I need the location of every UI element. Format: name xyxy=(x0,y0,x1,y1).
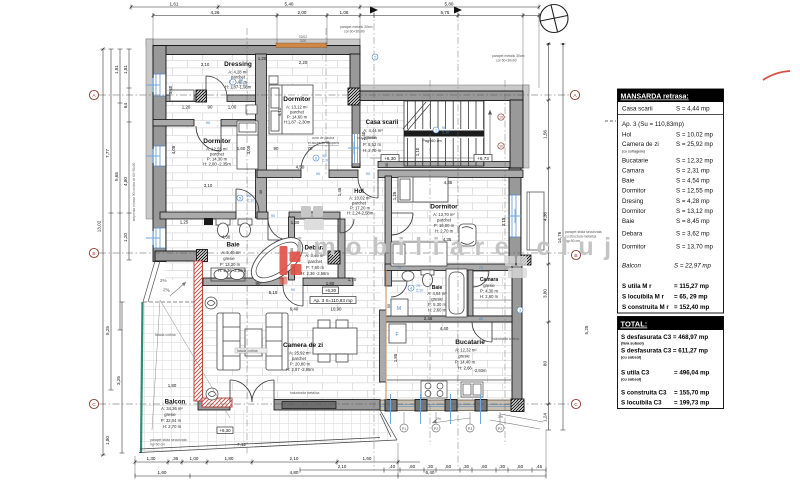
svg-text:gresie: gresie xyxy=(458,354,470,359)
svg-text:A: 12,32 m²: A: 12,32 m² xyxy=(455,348,477,353)
svg-text:90: 90 xyxy=(366,171,371,176)
svg-text:P: 5,30 m: P: 5,30 m xyxy=(428,302,446,307)
svg-text:H: 2,36 -2,56m: H: 2,36 -2,56m xyxy=(301,271,329,276)
svg-text:S = 12,55 mp: S = 12,55 mp xyxy=(676,188,714,195)
svg-text:parapet sticla securizata: parapet sticla securizata xyxy=(150,438,187,442)
svg-text:gresie: gresie xyxy=(431,297,443,302)
svg-text:H: 2,24-2,58m: H: 2,24-2,58m xyxy=(347,211,374,216)
svg-text:S = 3,62 mp: S = 3,62 mp xyxy=(676,231,710,238)
svg-text:P3: P3 xyxy=(468,427,472,431)
svg-text:TOTAL:: TOTAL: xyxy=(621,320,648,329)
svg-text:C: C xyxy=(92,402,96,408)
svg-text:Dormitor: Dormitor xyxy=(622,244,646,251)
svg-text:Baie: Baie xyxy=(226,242,240,249)
svg-text:2,20: 2,20 xyxy=(299,60,308,65)
svg-text:90: 90 xyxy=(291,287,296,292)
svg-text:2,40: 2,40 xyxy=(361,131,366,140)
svg-text:Camara: Camara xyxy=(622,168,645,175)
svg-text:1,81: 1,81 xyxy=(123,65,128,74)
svg-text:2,10: 2,10 xyxy=(247,199,254,203)
svg-text:10: 10 xyxy=(499,115,503,119)
svg-text:= 152,40 mp: = 152,40 mp xyxy=(674,304,709,311)
svg-text:S utila M r: S utila M r xyxy=(622,283,652,290)
svg-text:Dormitor: Dormitor xyxy=(622,208,646,215)
svg-text:80: 80 xyxy=(479,316,484,321)
svg-text:1: 1 xyxy=(435,129,437,133)
svg-text:1,24: 1,24 xyxy=(543,413,548,422)
svg-text:S locuibila M r: S locuibila M r xyxy=(622,294,665,301)
svg-text:C: C xyxy=(574,402,578,408)
svg-text:+6,30: +6,30 xyxy=(325,288,337,293)
svg-text:1,70: 1,70 xyxy=(348,277,357,282)
svg-text:S = 8,45 mp: S = 8,45 mp xyxy=(676,218,710,225)
svg-text:3,00: 3,00 xyxy=(300,39,306,43)
svg-text:3: 3 xyxy=(519,309,521,313)
svg-text:1,40: 1,40 xyxy=(168,85,173,94)
svg-text:H: 2,60 m: H: 2,60 m xyxy=(428,308,447,313)
svg-text:A: 34,36 m²: A: 34,36 m² xyxy=(161,406,183,411)
svg-text:2,10: 2,10 xyxy=(442,131,449,135)
svg-text:4,80: 4,80 xyxy=(123,177,128,186)
svg-text:90: 90 xyxy=(256,281,261,286)
svg-text:4,36: 4,36 xyxy=(543,212,548,221)
svg-text:2,10: 2,10 xyxy=(338,464,347,469)
svg-text:amprenta retrasa 30cm fata de: amprenta retrasa 30cm fata de 60+30x90 xyxy=(132,162,136,221)
svg-text:30: 30 xyxy=(259,190,263,194)
svg-text:1,80: 1,80 xyxy=(105,436,110,445)
svg-text:1,20: 1,20 xyxy=(123,233,128,242)
svg-text:P: 4,30 m: P: 4,30 m xyxy=(480,289,498,294)
svg-text:4,50: 4,50 xyxy=(296,165,305,170)
svg-text:Baie: Baie xyxy=(622,218,635,225)
svg-text:A: 13,70 m²: A: 13,70 m² xyxy=(433,212,455,217)
svg-text:S utila C3: S utila C3 xyxy=(621,370,650,377)
svg-text:5,65: 5,65 xyxy=(114,172,119,181)
svg-text:1,30: 1,30 xyxy=(147,456,156,461)
svg-text:,30: ,30 xyxy=(427,464,434,469)
svg-text:A: 5,46 m²: A: 5,46 m² xyxy=(221,250,241,255)
svg-text:Dormitor: Dormitor xyxy=(283,96,311,103)
svg-text:80: 80 xyxy=(543,361,548,367)
svg-text:70: 70 xyxy=(397,265,402,270)
svg-text:H: 2,66: H: 2,66 xyxy=(458,366,472,371)
svg-text:H: 2,36 -2,56m: H: 2,36 -2,56m xyxy=(218,268,246,273)
svg-text:gresie: gresie xyxy=(164,412,176,417)
svg-text:H: 2,60 m: H: 2,60 m xyxy=(480,294,499,299)
svg-text:50: 50 xyxy=(387,304,391,308)
svg-text:2,10: 2,10 xyxy=(290,456,299,461)
svg-text:parapet metalic 30cm: parapet metalic 30cm xyxy=(340,25,373,29)
svg-text:5,10: 5,10 xyxy=(269,290,278,295)
svg-text:1,60: 1,60 xyxy=(237,146,246,151)
svg-text:P2: P2 xyxy=(498,427,502,431)
svg-text:S = 4,28 mp: S = 4,28 mp xyxy=(676,198,710,205)
svg-text:balustrada metalica: balustrada metalica xyxy=(290,391,320,395)
svg-text:el acces de adopens: el acces de adopens xyxy=(308,141,339,145)
svg-text:= 65, 29 mp: = 65, 29 mp xyxy=(674,294,708,301)
svg-text:5,25: 5,25 xyxy=(105,326,110,335)
svg-text:(cu sufragerie): (cu sufragerie) xyxy=(622,150,645,154)
svg-text:4,26: 4,26 xyxy=(211,10,220,15)
svg-text:P: 20,80 m: P: 20,80 m xyxy=(290,362,311,367)
svg-text:3,25: 3,25 xyxy=(116,376,121,385)
svg-text:Casa scarii: Casa scarii xyxy=(622,106,653,113)
svg-text:Dressing: Dressing xyxy=(224,61,252,68)
svg-text:,60: ,60 xyxy=(445,464,452,469)
svg-text:,30: ,30 xyxy=(499,464,506,469)
svg-text:1,85: 1,85 xyxy=(393,353,398,362)
svg-text:M: M xyxy=(397,306,401,312)
svg-text:1,25: 1,25 xyxy=(180,220,189,225)
svg-text:1,20: 1,20 xyxy=(182,105,191,110)
svg-text:+6,30: +6,30 xyxy=(219,428,231,433)
svg-text:2%: 2% xyxy=(160,278,167,283)
svg-text:90: 90 xyxy=(316,171,321,176)
svg-text:1,60: 1,60 xyxy=(158,470,167,475)
svg-text:P1: P1 xyxy=(402,427,406,431)
svg-text:2: 2 xyxy=(374,56,376,60)
svg-text:Ap. 3 (Su = 110,83mp): Ap. 3 (Su = 110,83mp) xyxy=(622,121,684,128)
svg-text:A: 4,54 m²: A: 4,54 m² xyxy=(427,291,447,296)
svg-text:3,10: 3,10 xyxy=(204,183,213,188)
svg-text:B: B xyxy=(92,251,95,257)
svg-text:1,80: 1,80 xyxy=(168,383,177,388)
svg-text:S = 4,44 mp: S = 4,44 mp xyxy=(676,106,710,113)
svg-text:30: 30 xyxy=(290,248,294,252)
svg-text:1,81: 1,81 xyxy=(114,65,119,74)
svg-text:H: 2,00 -2,35m: H: 2,00 -2,35m xyxy=(203,162,231,167)
svg-text:parapet metalic 30cm: parapet metalic 30cm xyxy=(492,54,525,58)
svg-text:P: 16,00 m: P: 16,00 m xyxy=(434,223,455,228)
svg-text:,46: ,46 xyxy=(536,464,543,469)
svg-text:Dormitor: Dormitor xyxy=(430,204,458,211)
svg-text:4,80: 4,80 xyxy=(290,470,299,475)
svg-text:P2: P2 xyxy=(434,427,438,431)
svg-text:1,06: 1,06 xyxy=(340,10,349,15)
svg-text:3,15: 3,15 xyxy=(501,217,506,226)
svg-text:1,45: 1,45 xyxy=(337,187,342,196)
svg-text:2,10: 2,10 xyxy=(239,83,246,87)
svg-text:1,80: 1,80 xyxy=(326,281,335,286)
svg-text:S construita M r: S construita M r xyxy=(622,304,669,311)
svg-text:Debara: Debara xyxy=(622,231,643,238)
svg-text:5,80: 5,80 xyxy=(445,2,454,7)
svg-text:S desfasurata C3 = 611,27 mp: S desfasurata C3 = 611,27 mp xyxy=(621,348,708,355)
svg-text:H: 2,70 m: H: 2,70 m xyxy=(363,148,382,153)
svg-text:2,10: 2,10 xyxy=(416,289,423,293)
svg-text:S construita C3: S construita C3 xyxy=(621,390,667,397)
svg-text:(cu subsol): (cu subsol) xyxy=(621,378,642,382)
svg-text:Casa scarii: Casa scarii xyxy=(366,119,399,126)
svg-text:= 199,73 mp: = 199,73 mp xyxy=(674,400,709,407)
svg-text:gresie: gresie xyxy=(223,256,235,261)
svg-text:F: F xyxy=(395,332,398,338)
svg-text:A: 25,92 m²: A: 25,92 m² xyxy=(289,351,311,356)
svg-text:7,12°: 7,12° xyxy=(237,442,248,447)
svg-text:+6,73: +6,73 xyxy=(477,156,489,161)
svg-text:parchet: parchet xyxy=(292,356,307,361)
svg-text:= 115,27 mp: = 115,27 mp xyxy=(674,283,709,290)
svg-text:4,10: 4,10 xyxy=(277,107,282,116)
svg-text:10,90: 10,90 xyxy=(331,307,343,312)
svg-text:P: 13,20 m: P: 13,20 m xyxy=(220,262,241,267)
svg-text:S = 25,92 mp: S = 25,92 mp xyxy=(676,141,714,148)
svg-text:5,75: 5,75 xyxy=(441,10,450,15)
svg-text:P: 7,60 m: P: 7,60 m xyxy=(306,265,324,270)
svg-text:+6,30: +6,30 xyxy=(384,156,396,161)
svg-text:90: 90 xyxy=(208,105,213,110)
svg-text:7,77: 7,77 xyxy=(105,149,110,158)
svg-text:= 155,70 mp: = 155,70 mp xyxy=(674,390,709,397)
svg-text:A: 4,44 m²: A: 4,44 m² xyxy=(363,128,383,133)
svg-text:4,35: 4,35 xyxy=(444,180,453,185)
svg-text:S = 12,32 mp: S = 12,32 mp xyxy=(676,158,714,165)
svg-text:4,30: 4,30 xyxy=(222,235,231,240)
svg-text:90: 90 xyxy=(442,126,446,130)
svg-text:H: 2,70 m: H: 2,70 m xyxy=(163,424,182,429)
svg-text:,60: ,60 xyxy=(517,464,524,469)
svg-text:90: 90 xyxy=(206,120,211,125)
svg-text:fatada cortina: fatada cortina xyxy=(237,349,258,353)
svg-text:1,10: 1,10 xyxy=(415,147,420,156)
svg-text:,40: ,40 xyxy=(389,464,396,469)
svg-text:80: 80 xyxy=(239,78,243,82)
svg-text:H:1,87 -2,30m: H:1,87 -2,30m xyxy=(284,120,311,125)
svg-text:Pag=60 cm: Pag=60 cm xyxy=(422,139,441,143)
svg-text:5,25: 5,25 xyxy=(584,325,589,334)
svg-text:1,00: 1,00 xyxy=(228,105,237,110)
svg-text:-2,93m: -2,93m xyxy=(473,368,487,373)
svg-text:1,56: 1,56 xyxy=(543,130,548,139)
svg-text:5,40: 5,40 xyxy=(285,2,294,7)
svg-text:1,30: 1,30 xyxy=(291,220,300,225)
svg-text:,60: ,60 xyxy=(409,464,416,469)
svg-text:P: 8,52 m: P: 8,52 m xyxy=(363,142,381,147)
svg-text:Camera de zi: Camera de zi xyxy=(622,141,659,148)
svg-text:H: 2,87 -2,95m: H: 2,87 -2,95m xyxy=(286,367,314,372)
svg-text:,30: ,30 xyxy=(463,464,470,469)
svg-text:2%: 2% xyxy=(498,415,503,419)
svg-text:S = 10,02 mp: S = 10,02 mp xyxy=(676,132,714,139)
svg-text:= 496,04 mp: = 496,04 mp xyxy=(674,370,709,377)
svg-text:3,80: 3,80 xyxy=(543,289,548,298)
svg-text:Balcon: Balcon xyxy=(622,263,641,270)
svg-text:(cu subsol): (cu subsol) xyxy=(621,356,642,360)
svg-text:cor 60+30x90: cor 60+30x90 xyxy=(496,59,517,63)
svg-text:4,40: 4,40 xyxy=(440,326,449,331)
svg-text:hg=90 cm: hg=90 cm xyxy=(150,443,165,447)
svg-text:balustrada cortina: balustrada cortina xyxy=(492,337,519,341)
svg-text:S = 4,54 mp: S = 4,54 mp xyxy=(676,178,710,185)
svg-text:parchet: parchet xyxy=(437,218,452,223)
svg-text:aura de pasica: aura de pasica xyxy=(312,136,334,140)
svg-text:MANSARDA retrasa:: MANSARDA retrasa: xyxy=(621,94,689,101)
svg-text:S desfasurata C3 = 468,97 mp: S desfasurata C3 = 468,97 mp xyxy=(621,334,708,341)
svg-text:S locuibila C3: S locuibila C3 xyxy=(621,400,662,407)
svg-text:Dormitor: Dormitor xyxy=(203,138,231,145)
svg-text:4: 4 xyxy=(410,287,412,291)
svg-text:Camera de zi: Camera de zi xyxy=(283,342,323,349)
svg-text:Hol: Hol xyxy=(622,132,631,139)
svg-text:Bucatarie: Bucatarie xyxy=(622,158,649,165)
svg-text:1,60: 1,60 xyxy=(363,456,372,461)
svg-text:2%: 2% xyxy=(436,417,441,421)
svg-text:S = 13,70 mp: S = 13,70 mp xyxy=(676,244,714,251)
svg-text:Balcon: Balcon xyxy=(165,399,186,406)
svg-text:imobiliare cluj: imobiliare cluj xyxy=(296,233,622,261)
svg-text:Bucatarie: Bucatarie xyxy=(455,339,485,346)
svg-text:90: 90 xyxy=(322,154,326,158)
svg-text:7: 7 xyxy=(232,81,234,85)
svg-text:(fara subsol): (fara subsol) xyxy=(621,342,645,346)
svg-text:S = 2,31 mp: S = 2,31 mp xyxy=(676,168,710,175)
svg-text:1,80: 1,80 xyxy=(225,456,234,461)
svg-text:2,00: 2,00 xyxy=(298,10,307,15)
svg-text:6,40: 6,40 xyxy=(426,470,435,475)
svg-text:Dormitor: Dormitor xyxy=(622,188,646,195)
svg-text:70: 70 xyxy=(479,265,484,270)
svg-text:P: 32,04 m: P: 32,04 m xyxy=(161,418,182,423)
svg-text:,36: ,36 xyxy=(172,456,179,461)
svg-text:90: 90 xyxy=(247,194,251,198)
svg-text:1,61: 1,61 xyxy=(170,2,179,7)
svg-text:2,46: 2,46 xyxy=(424,316,433,321)
svg-text:,60: ,60 xyxy=(481,464,488,469)
svg-text:Baie: Baie xyxy=(622,178,635,185)
svg-text:6: 6 xyxy=(315,157,317,161)
svg-text:90: 90 xyxy=(274,146,279,151)
svg-text:S = 22,97 mp: S = 22,97 mp xyxy=(674,263,712,270)
svg-text:2%: 2% xyxy=(163,287,170,293)
svg-text:70: 70 xyxy=(308,146,313,151)
svg-text:90: 90 xyxy=(271,213,276,218)
svg-text:10: 10 xyxy=(499,144,503,148)
svg-text:cor 60+30x90: cor 60+30x90 xyxy=(344,30,365,34)
svg-text:70: 70 xyxy=(416,284,420,288)
svg-text:1,00: 1,00 xyxy=(190,456,199,461)
svg-text:2,10: 2,10 xyxy=(322,159,329,163)
svg-text:Hol: Hol xyxy=(354,189,364,195)
svg-text:1,20: 1,20 xyxy=(258,56,267,61)
svg-text:64: 64 xyxy=(123,103,128,109)
svg-text:1,25: 1,25 xyxy=(392,191,397,200)
svg-text:3,10: 3,10 xyxy=(201,62,210,67)
svg-text:Ap. 3 S=110,83 mp: Ap. 3 S=110,83 mp xyxy=(313,298,353,303)
svg-text:13,02: 13,02 xyxy=(97,220,102,232)
svg-text:6,40: 6,40 xyxy=(290,307,299,312)
svg-text:4,05: 4,05 xyxy=(171,145,176,154)
svg-text:5: 5 xyxy=(239,197,241,201)
svg-text:30: 30 xyxy=(385,163,389,167)
svg-text:gresie: gresie xyxy=(483,283,495,288)
svg-text:Dresing: Dresing xyxy=(622,198,644,205)
svg-text:S = 13,12 mp: S = 13,12 mp xyxy=(676,208,714,215)
svg-text:3,05: 3,05 xyxy=(246,145,251,154)
